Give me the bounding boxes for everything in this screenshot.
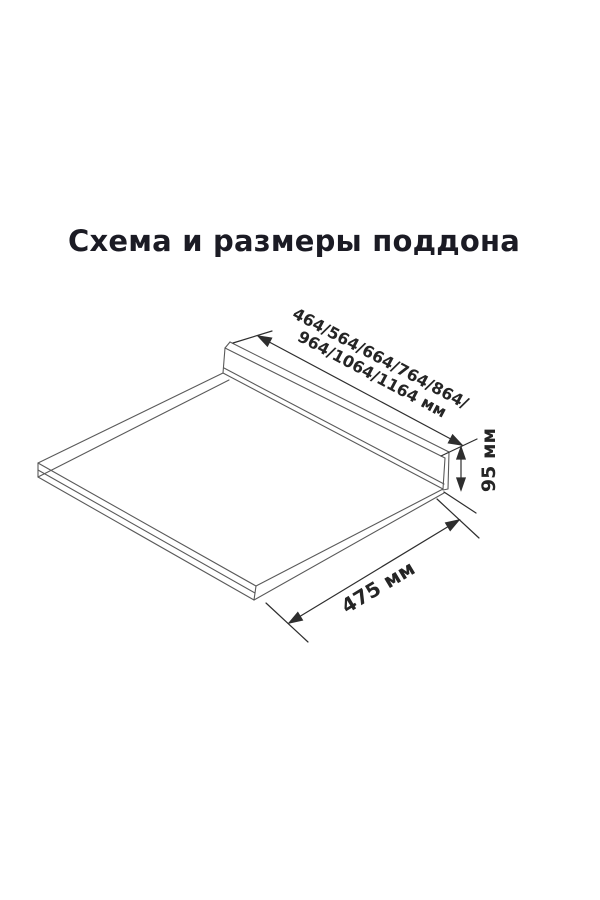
pallet-outline	[38, 342, 449, 600]
width-dim-line	[258, 336, 462, 445]
pallet-diagram	[0, 0, 600, 900]
height-arrow-top	[457, 447, 465, 459]
tray-front-edge-bottom	[38, 477, 254, 600]
tray-front-crease	[38, 470, 255, 593]
height-arrow-bottom	[457, 478, 465, 490]
depth-dimension	[266, 499, 479, 642]
width-arrow-left	[258, 336, 272, 346]
rail-top-front-edge	[225, 348, 445, 458]
width-arrow-right	[448, 435, 462, 445]
page: Схема и размеры поддона	[0, 0, 600, 900]
rail-bottom-fold	[224, 368, 444, 484]
tray-front-edge-top	[38, 463, 256, 586]
tray-left-edge-top	[38, 373, 223, 463]
tray-right-edge-top	[256, 489, 443, 586]
rail-left-end-edge	[223, 348, 225, 373]
depth-arrow-left	[289, 613, 302, 624]
rail-top-back-edge	[230, 342, 449, 452]
tray-left-edge-bottom	[38, 380, 229, 477]
depth-dim-line	[289, 520, 459, 623]
depth-arrow-right	[446, 520, 459, 531]
depth-ext-left	[266, 603, 308, 642]
width-dimension	[233, 331, 462, 445]
rail-bottom-edge	[223, 373, 443, 489]
depth-ext-right	[437, 499, 479, 538]
rail-left-top-edge	[225, 342, 230, 348]
